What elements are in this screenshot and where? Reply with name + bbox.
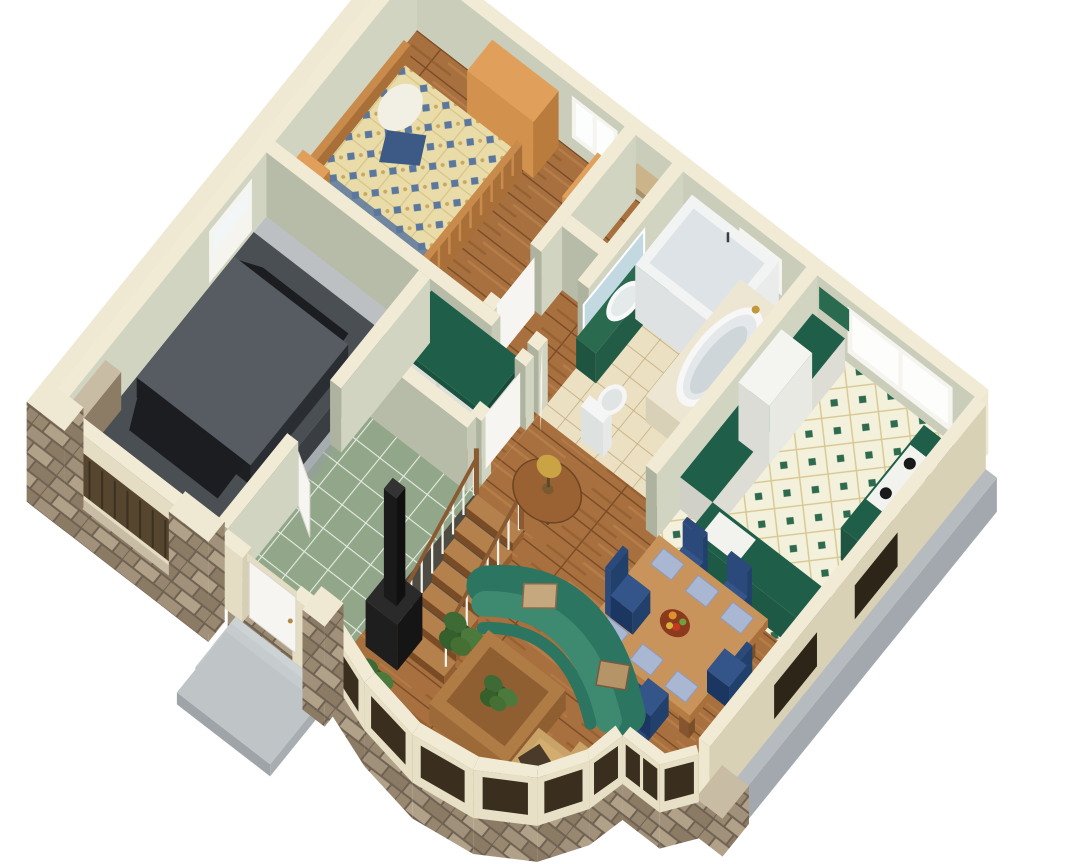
floor-plan-3d-rendering: [0, 0, 1080, 864]
floor-plan-stage: [0, 0, 1080, 864]
isometric-plan-group: [0, 0, 1057, 864]
